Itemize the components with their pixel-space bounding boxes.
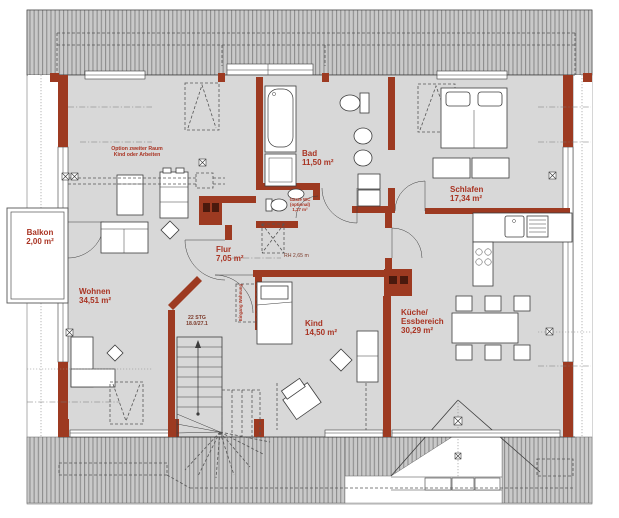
kind-wardrobe xyxy=(357,331,378,382)
room-label-kind: Kind14,50 m² xyxy=(305,319,337,337)
window-symbol xyxy=(71,173,78,180)
window-symbol xyxy=(455,453,461,459)
room-label-bad: Bad11,50 m² xyxy=(302,149,334,167)
roof-top xyxy=(27,10,592,80)
balcony xyxy=(7,208,68,303)
dining-table xyxy=(452,296,530,360)
window-symbol xyxy=(454,417,462,425)
chimney xyxy=(199,196,222,225)
room-label-flur: Flur7,05 m² xyxy=(216,245,244,263)
floor-plan-drawing xyxy=(0,0,619,518)
room-height-label: RH 2,65 m xyxy=(284,254,309,260)
toilet xyxy=(340,93,369,113)
bathtub xyxy=(265,86,296,152)
window-symbol xyxy=(66,329,73,336)
single-bed xyxy=(257,282,292,344)
armchair xyxy=(117,175,143,215)
chimney xyxy=(384,269,412,296)
window-symbol xyxy=(549,172,556,179)
shower xyxy=(265,154,296,186)
room-label-balkon: Balkon2,00 m² xyxy=(14,228,66,246)
floor-plan: Balkon2,00 m² Wohnen34,51 m² Option zwei… xyxy=(0,0,619,518)
window-symbol xyxy=(199,159,206,166)
room-label-wohnen: Wohnen34,51 m² xyxy=(79,287,111,305)
entrance-label: Eingang Wohnung xyxy=(238,285,243,321)
stairs-label: 22 STG18.0/27.1 xyxy=(176,316,218,328)
room-label-kueche: Küche/Essbereich30,29 m² xyxy=(401,308,444,336)
option-room-note: Option zweiter RaumKind oder Arbeiten xyxy=(88,147,186,159)
bath-shelf xyxy=(358,174,380,206)
window-symbol xyxy=(62,173,69,180)
window-symbol xyxy=(546,328,553,335)
shelf-unit xyxy=(160,168,188,218)
room-label-gaeste-wc: Gäste WC(optional)1,27 m² xyxy=(283,198,317,213)
room-label-schlafen: Schlafen17,34 m² xyxy=(450,185,483,203)
sofa xyxy=(101,222,148,253)
